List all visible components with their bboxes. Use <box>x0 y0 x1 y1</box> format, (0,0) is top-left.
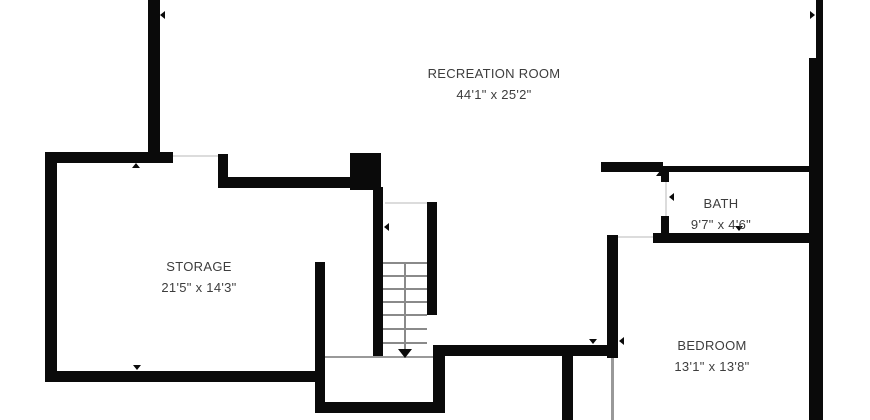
floor-plan: RECREATION ROOM 44'1" x 25'2" STORAGE 21… <box>0 0 870 420</box>
door-marker-icon <box>589 339 597 344</box>
room-label-recreation-room: RECREATION ROOM 44'1" x 25'2" <box>428 63 561 105</box>
partition-line <box>611 358 614 420</box>
door-marker-icon <box>656 171 664 176</box>
chimney-block <box>350 153 381 190</box>
door-marker-icon <box>160 11 165 19</box>
wall <box>562 345 573 420</box>
wall <box>607 235 618 358</box>
room-dimensions: 44'1" x 25'2" <box>428 84 561 105</box>
room-dimensions: 21'5" x 14'3" <box>161 277 236 298</box>
wall <box>433 347 445 413</box>
door-opening-line <box>385 202 427 204</box>
door-marker-icon <box>669 193 674 201</box>
wall <box>45 152 173 163</box>
room-name: STORAGE <box>161 256 236 277</box>
room-label-storage: STORAGE 21'5" x 14'3" <box>161 256 236 298</box>
door-opening-line <box>618 236 653 238</box>
wall <box>315 262 325 413</box>
room-name: BATH <box>691 193 751 214</box>
wall <box>45 152 57 382</box>
room-label-bedroom: BEDROOM 13'1" x 13'8" <box>674 335 749 377</box>
door-marker-icon <box>132 163 140 168</box>
wall <box>433 345 610 356</box>
wall <box>663 166 810 172</box>
door-marker-icon <box>619 337 624 345</box>
room-label-bath: BATH 9'7" x 4'6" <box>691 193 751 235</box>
door-opening-line <box>173 155 218 157</box>
door-opening-line <box>665 182 667 216</box>
wall <box>809 58 823 420</box>
door-marker-icon <box>810 11 815 19</box>
wall <box>218 177 352 188</box>
room-name: BEDROOM <box>674 335 749 356</box>
wall <box>373 187 383 357</box>
room-name: RECREATION ROOM <box>428 63 561 84</box>
wall <box>45 371 325 382</box>
stair-direction-line <box>404 262 406 350</box>
door-marker-icon <box>384 223 389 231</box>
wall <box>315 402 445 413</box>
door-marker-icon <box>133 365 141 370</box>
wall <box>601 162 663 172</box>
wall <box>816 0 823 58</box>
room-dimensions: 9'7" x 4'6" <box>691 214 751 235</box>
room-dimensions: 13'1" x 13'8" <box>674 356 749 377</box>
landing-line <box>325 356 433 358</box>
wall <box>148 0 160 161</box>
stair-down-arrow-icon <box>398 349 412 358</box>
wall <box>427 202 437 315</box>
